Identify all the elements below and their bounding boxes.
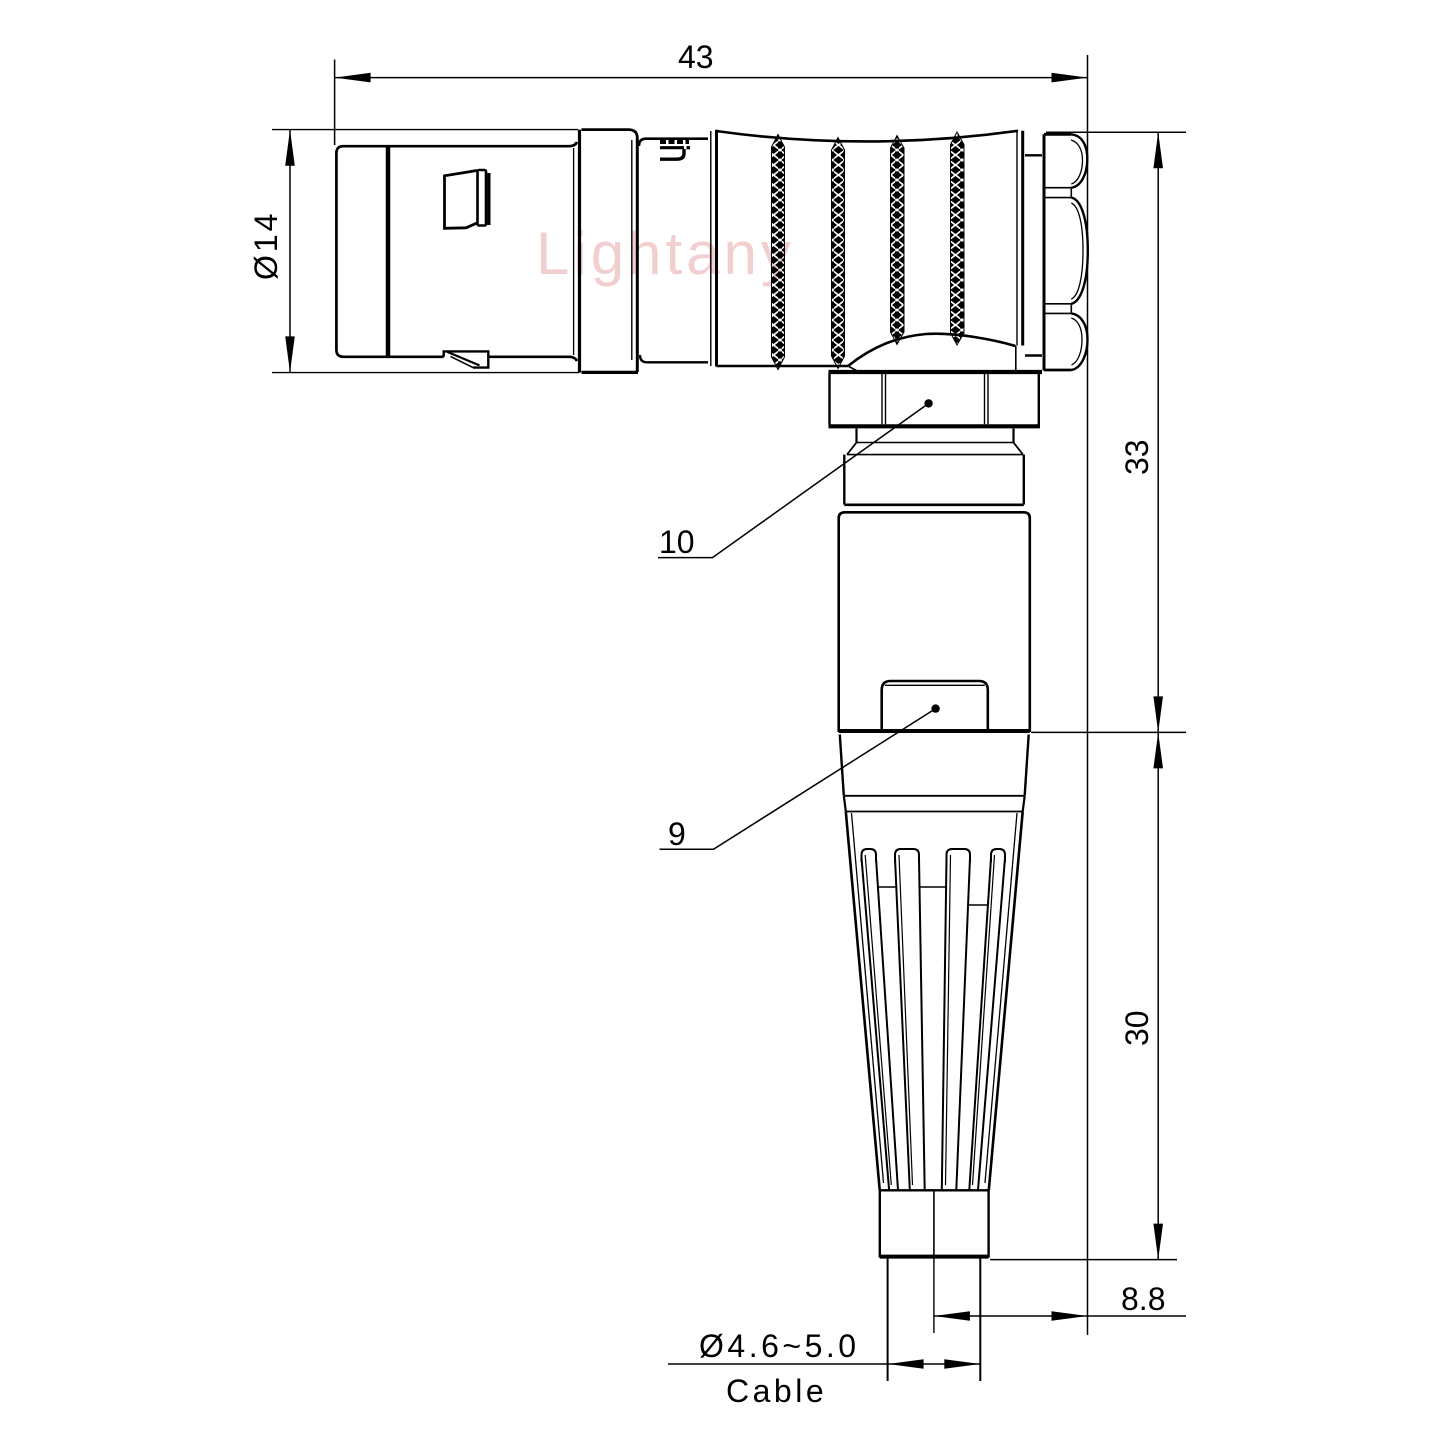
svg-text:33: 33 [1119,439,1155,475]
svg-text:9: 9 [668,816,686,852]
svg-text:Ø14: Ø14 [248,211,284,280]
svg-text:Cable: Cable [726,1373,827,1409]
svg-text:Lightany: Lightany [536,220,795,287]
svg-text:8.8: 8.8 [1121,1281,1165,1317]
svg-text:30: 30 [1119,1010,1155,1046]
svg-text:10: 10 [659,524,695,560]
svg-text:43: 43 [678,39,714,75]
svg-text:Ø4.6~5.0: Ø4.6~5.0 [699,1328,860,1364]
